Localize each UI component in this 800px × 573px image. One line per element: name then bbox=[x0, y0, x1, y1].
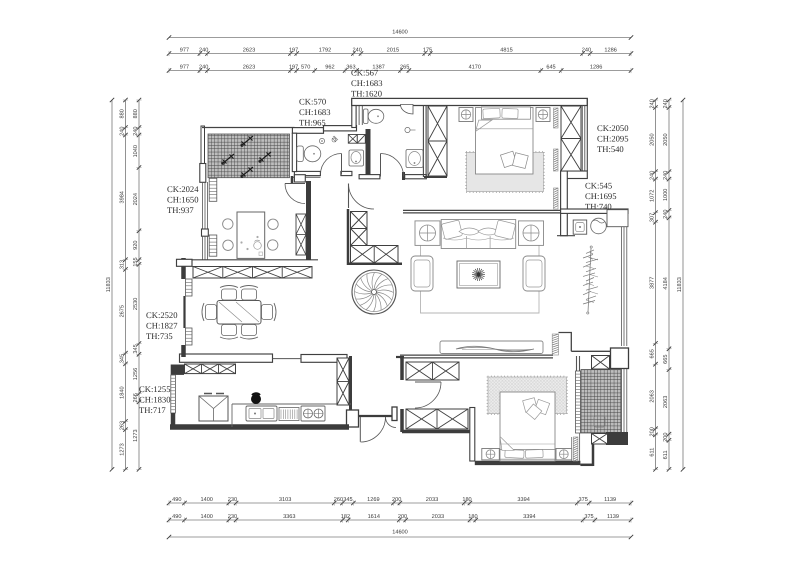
svg-text:240: 240 bbox=[199, 48, 208, 54]
svg-text:1400: 1400 bbox=[200, 514, 212, 520]
svg-text:TH:717: TH:717 bbox=[139, 405, 166, 415]
svg-text:1614: 1614 bbox=[368, 514, 380, 520]
svg-text:240: 240 bbox=[663, 99, 669, 108]
svg-text:1269: 1269 bbox=[367, 497, 379, 503]
svg-text:2623: 2623 bbox=[243, 48, 255, 54]
svg-text:240: 240 bbox=[582, 48, 591, 54]
svg-text:3394: 3394 bbox=[517, 497, 529, 503]
svg-text:1400: 1400 bbox=[200, 497, 212, 503]
svg-text:2024: 2024 bbox=[133, 193, 139, 205]
svg-text:375: 375 bbox=[579, 497, 588, 503]
svg-text:611: 611 bbox=[663, 450, 669, 459]
svg-text:1840: 1840 bbox=[120, 386, 126, 398]
svg-text:2033: 2033 bbox=[426, 497, 438, 503]
svg-text:TH:540: TH:540 bbox=[597, 144, 624, 154]
svg-text:CK:2024: CK:2024 bbox=[167, 184, 199, 194]
svg-text:200: 200 bbox=[392, 497, 401, 503]
svg-text:1000: 1000 bbox=[663, 189, 669, 201]
svg-text:570: 570 bbox=[301, 65, 310, 71]
svg-text:1139: 1139 bbox=[604, 497, 616, 503]
svg-text:TH:965: TH:965 bbox=[299, 118, 326, 128]
svg-text:TH:1620: TH:1620 bbox=[351, 89, 382, 99]
svg-text:490: 490 bbox=[172, 514, 181, 520]
svg-text:2063: 2063 bbox=[663, 396, 669, 408]
svg-text:1286: 1286 bbox=[604, 48, 616, 54]
svg-text:14600: 14600 bbox=[392, 30, 408, 36]
svg-text:240: 240 bbox=[663, 210, 669, 219]
svg-text:2050: 2050 bbox=[663, 133, 669, 145]
svg-text:CK:545: CK:545 bbox=[585, 181, 612, 191]
svg-text:2675: 2675 bbox=[120, 305, 126, 317]
svg-text:CK:570: CK:570 bbox=[299, 97, 326, 107]
svg-text:880: 880 bbox=[120, 109, 126, 118]
svg-text:645: 645 bbox=[546, 65, 555, 71]
svg-text:3394: 3394 bbox=[523, 514, 535, 520]
svg-text:3877: 3877 bbox=[650, 277, 656, 289]
svg-text:200: 200 bbox=[398, 514, 407, 520]
svg-text:180: 180 bbox=[462, 497, 471, 503]
svg-text:490: 490 bbox=[172, 497, 181, 503]
svg-text:1273: 1273 bbox=[133, 429, 139, 441]
svg-text:2063: 2063 bbox=[650, 390, 656, 402]
svg-text:1792: 1792 bbox=[319, 48, 331, 54]
svg-text:197: 197 bbox=[289, 48, 298, 54]
svg-text:3984: 3984 bbox=[120, 191, 126, 203]
svg-text:1040: 1040 bbox=[133, 145, 139, 157]
svg-text:230: 230 bbox=[228, 514, 237, 520]
svg-text:260: 260 bbox=[334, 497, 343, 503]
svg-text:2033: 2033 bbox=[432, 514, 444, 520]
svg-text:240: 240 bbox=[120, 127, 126, 136]
svg-text:1072: 1072 bbox=[650, 190, 656, 202]
svg-text:2050: 2050 bbox=[650, 133, 656, 145]
svg-text:345: 345 bbox=[120, 354, 126, 363]
svg-text:263: 263 bbox=[120, 421, 126, 430]
svg-text:11833: 11833 bbox=[677, 277, 683, 292]
svg-text:977: 977 bbox=[180, 48, 189, 54]
svg-text:2623: 2623 bbox=[243, 65, 255, 71]
svg-text:665: 665 bbox=[650, 349, 656, 358]
svg-text:611: 611 bbox=[650, 448, 656, 457]
svg-text:11833: 11833 bbox=[106, 277, 112, 292]
svg-text:CK:1255: CK:1255 bbox=[139, 384, 171, 394]
svg-text:240: 240 bbox=[663, 171, 669, 180]
svg-text:180: 180 bbox=[468, 514, 477, 520]
svg-text:CK:2050: CK:2050 bbox=[597, 123, 629, 133]
svg-text:240: 240 bbox=[133, 127, 139, 136]
svg-text:1139: 1139 bbox=[607, 514, 619, 520]
svg-text:1256: 1256 bbox=[133, 368, 139, 380]
svg-text:240: 240 bbox=[353, 48, 362, 54]
svg-text:TH:937: TH:937 bbox=[167, 205, 194, 215]
svg-text:CH:1695: CH:1695 bbox=[585, 191, 617, 201]
svg-text:CH:1827: CH:1827 bbox=[146, 321, 178, 331]
svg-text:313: 313 bbox=[120, 260, 126, 269]
svg-text:240: 240 bbox=[650, 99, 656, 108]
svg-text:977: 977 bbox=[180, 65, 189, 71]
svg-text:4815: 4815 bbox=[500, 48, 512, 54]
svg-text:200: 200 bbox=[650, 427, 656, 436]
svg-text:CK:567: CK:567 bbox=[351, 68, 379, 78]
svg-text:345: 345 bbox=[133, 344, 139, 353]
svg-text:197: 197 bbox=[289, 65, 298, 71]
svg-text:1273: 1273 bbox=[120, 443, 126, 455]
svg-text:307: 307 bbox=[650, 213, 656, 222]
svg-text:175: 175 bbox=[423, 48, 432, 54]
svg-text:265: 265 bbox=[400, 65, 409, 71]
svg-text:2015: 2015 bbox=[387, 48, 399, 54]
svg-text:665: 665 bbox=[663, 355, 669, 364]
svg-text:155: 155 bbox=[133, 257, 139, 266]
svg-text:4184: 4184 bbox=[663, 277, 669, 289]
svg-text:14600: 14600 bbox=[392, 530, 408, 536]
svg-text:375: 375 bbox=[584, 514, 593, 520]
svg-text:CK:2520: CK:2520 bbox=[146, 310, 178, 320]
svg-text:240: 240 bbox=[199, 65, 208, 71]
svg-text:4170: 4170 bbox=[469, 65, 481, 71]
svg-text:880: 880 bbox=[133, 109, 139, 118]
svg-text:230: 230 bbox=[228, 497, 237, 503]
svg-text:920: 920 bbox=[133, 241, 139, 250]
svg-text:CH:1683: CH:1683 bbox=[351, 78, 383, 88]
svg-text:TH:735: TH:735 bbox=[146, 331, 173, 341]
svg-text:CH:1683: CH:1683 bbox=[299, 107, 331, 117]
svg-text:962: 962 bbox=[325, 65, 334, 71]
svg-text:240: 240 bbox=[650, 171, 656, 180]
svg-text:345: 345 bbox=[343, 497, 352, 503]
svg-text:200: 200 bbox=[663, 433, 669, 442]
svg-text:CH:1650: CH:1650 bbox=[167, 195, 199, 205]
svg-text:CH:2095: CH:2095 bbox=[597, 134, 629, 144]
svg-text:3103: 3103 bbox=[279, 497, 291, 503]
svg-text:3363: 3363 bbox=[283, 514, 295, 520]
svg-text:1286: 1286 bbox=[590, 65, 602, 71]
svg-text:CH:1830: CH:1830 bbox=[139, 395, 171, 405]
svg-text:2530: 2530 bbox=[133, 298, 139, 310]
svg-text:182: 182 bbox=[341, 514, 350, 520]
